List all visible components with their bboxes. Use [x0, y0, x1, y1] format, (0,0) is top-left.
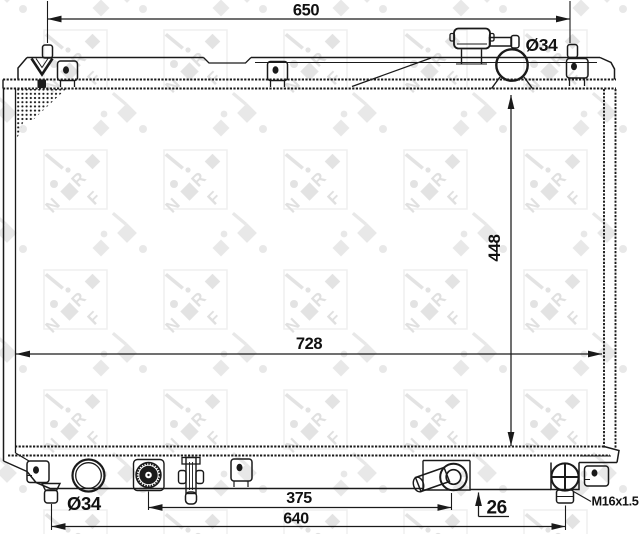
dim-o34-top-label: Ø34 — [526, 35, 559, 55]
dim-448-label: 448 — [485, 234, 504, 261]
dim-o34-bottom-label: Ø34 — [67, 493, 102, 514]
dim-375-label: 375 — [286, 490, 312, 507]
dim-640-label: 640 — [283, 511, 309, 528]
drawing-canvas: N R F — [0, 0, 640, 534]
dim-26-label: 26 — [487, 498, 507, 519]
dim-728-label: 728 — [296, 335, 323, 353]
dim-m16-label: M16x1.5 — [592, 494, 639, 509]
dim-650-label: 650 — [293, 2, 320, 20]
radiator-technical-drawing: N R F — [0, 0, 640, 534]
